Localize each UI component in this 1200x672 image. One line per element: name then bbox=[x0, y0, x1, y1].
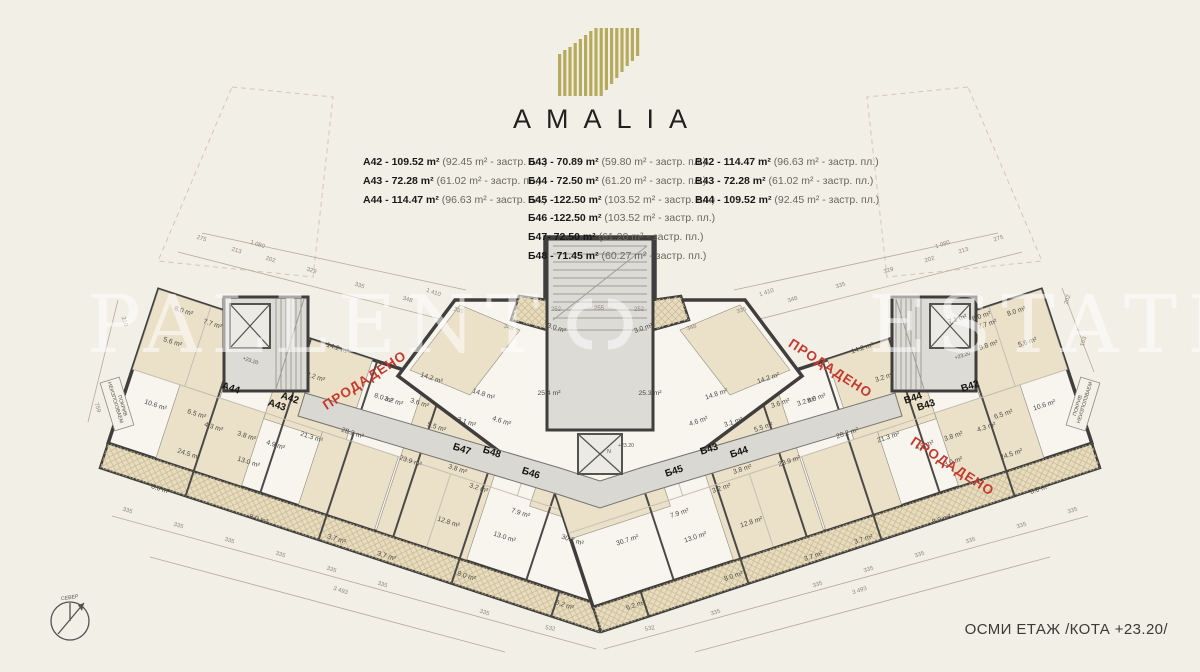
dimension-label: 275 bbox=[993, 234, 1005, 243]
legend-unit-area: Б45 -122.50 m² bbox=[528, 194, 602, 206]
legend-item: Б46 -122.50 m² (103.52 m² - застр. пл.) bbox=[528, 208, 715, 227]
dimension-label: 329 bbox=[306, 267, 318, 276]
dimension-label: 335 bbox=[377, 581, 389, 590]
legend-built-area: (59.80 m² - застр. пл.) bbox=[599, 156, 707, 168]
dimension-label: 335 bbox=[326, 566, 338, 575]
logo-title: AMALIA bbox=[0, 104, 1200, 135]
plan-note-label: N bbox=[607, 449, 611, 455]
legend-unit-area: Б47- 72.50 m² bbox=[528, 231, 596, 243]
dimension-label: 335 bbox=[224, 537, 236, 546]
legend-item: Б47- 72.50 m² (61.20 m² - застр. пл.) bbox=[528, 227, 715, 246]
dimension-label: 335 bbox=[835, 281, 847, 290]
dimension-label: 1 080 bbox=[935, 240, 952, 251]
dimension-label: 335 bbox=[710, 608, 722, 617]
legend-unit-area: В44 - 109.52 m² bbox=[695, 194, 771, 206]
legend-unit-area: В43 - 72.28 m² bbox=[695, 175, 766, 187]
floor-title: ОСМИ ЕТАЖ /КОТА +23.20/ bbox=[965, 621, 1169, 638]
dimension-label: 335 bbox=[173, 522, 185, 531]
dimension-label: 335 bbox=[812, 580, 824, 589]
dimension-label: 335 bbox=[914, 550, 926, 559]
room-area-label: 25.4 m² bbox=[537, 390, 561, 397]
legend-built-area: (61.02 m² - застр. пл.) bbox=[766, 175, 874, 187]
dimension-label: 532 bbox=[644, 625, 656, 633]
dimension-label: 759 bbox=[93, 402, 102, 414]
legend-column-b: Б43 - 70.89 m² (59.80 m² - застр. пл.)Б4… bbox=[528, 152, 715, 265]
legend-item: Б45 -122.50 m² (103.52 m² - застр. пл.) bbox=[528, 190, 715, 209]
legend-item: Б44 - 72.50 m² (61.20 m² - застр. пл.) bbox=[528, 171, 715, 190]
dimension-label: 335 bbox=[275, 551, 287, 560]
legend-item: В42 - 114.47 m² (96.63 m² - застр. пл.) bbox=[695, 152, 879, 171]
legend-built-area: (92.45 m² - застр. пл.) bbox=[771, 194, 879, 206]
legend-item: A43 - 72.28 m² (61.02 m² - застр. пл.) bbox=[363, 171, 547, 190]
legend-built-area: (60.27 m² - застр. пл.) bbox=[599, 250, 707, 262]
legend-item: Б48 - 71.45 m² (60.27 m² - застр. пл.) bbox=[528, 246, 715, 265]
dimension-label: 213 bbox=[958, 246, 970, 255]
legend-column-a: A42 - 109.52 m² (92.45 m² - застр. пл.)A… bbox=[363, 152, 547, 208]
legend-unit-area: Б48 - 71.45 m² bbox=[528, 250, 599, 262]
logo: AMALIA bbox=[0, 28, 1200, 135]
central-elevator-icon bbox=[578, 434, 622, 474]
legend-unit-area: Б44 - 72.50 m² bbox=[528, 175, 599, 187]
legend-unit-area: A43 - 72.28 m² bbox=[363, 175, 434, 187]
dimension-label: 532 bbox=[545, 625, 557, 633]
logo-bars-icon bbox=[558, 28, 642, 96]
legend-unit-area: A42 - 109.52 m² bbox=[363, 156, 439, 168]
dimension-label: 1 080 bbox=[249, 240, 266, 251]
dimension-label: 252 bbox=[634, 307, 645, 313]
dimension-label: 348 bbox=[787, 295, 799, 304]
legend-unit-area: В42 - 114.47 m² bbox=[695, 156, 771, 168]
page: 8.0 m²7.7 m²5.6 m²14.2 m²3.2 m²3.2 m²10.… bbox=[0, 0, 1200, 672]
watermark-right: ESTATE bbox=[868, 278, 1200, 371]
plan-note-label: +23.20 bbox=[618, 443, 634, 449]
legend-unit-area: Б46 -122.50 m² bbox=[528, 212, 602, 224]
legend-unit-area: Б43 - 70.89 m² bbox=[528, 156, 599, 168]
dimension-label: 329 bbox=[883, 266, 895, 275]
dimension-label: 3 493 bbox=[332, 586, 349, 597]
dimension-label: 1 410 bbox=[759, 288, 776, 299]
dimension-label: 335 bbox=[965, 536, 977, 545]
dimension-label: 335 bbox=[122, 507, 134, 516]
legend-built-area: (103.52 m² - застр. пл.) bbox=[602, 212, 716, 224]
north-compass-icon bbox=[51, 602, 89, 640]
dimension-label: 213 bbox=[231, 247, 243, 256]
dimension-label: 275 bbox=[196, 235, 208, 244]
legend-built-area: (61.20 m² - застр. пл.) bbox=[596, 231, 704, 243]
dimension-label: 202 bbox=[265, 256, 277, 265]
legend-built-area: (61.20 m² - застр. пл.) bbox=[599, 175, 707, 187]
legend-item: В43 - 72.28 m² (61.02 m² - застр. пл.) bbox=[695, 171, 879, 190]
dimension-label: 202 bbox=[924, 255, 936, 264]
dimension-label: 335 bbox=[1067, 506, 1079, 515]
legend-built-area: (61.02 m² - застр. пл.) bbox=[434, 175, 542, 187]
dimension-label: 335 bbox=[863, 565, 875, 574]
dimension-label: 335 bbox=[1016, 521, 1028, 530]
plan-note-label: СЕВЕР bbox=[61, 594, 80, 602]
legend-item: A42 - 109.52 m² (92.45 m² - застр. пл.) bbox=[363, 152, 547, 171]
dimension-label: 335 bbox=[479, 609, 491, 618]
central-stairs bbox=[547, 239, 653, 430]
dimension-label: 3 493 bbox=[852, 586, 869, 597]
legend-item: В44 - 109.52 m² (92.45 m² - застр. пл.) bbox=[695, 190, 879, 209]
legend-item: Б43 - 70.89 m² (59.80 m² - застр. пл.) bbox=[528, 152, 715, 171]
legend-unit-area: A44 - 114.47 m² bbox=[363, 194, 439, 206]
legend-item: A44 - 114.47 m² (96.63 m² - застр. пл.) bbox=[363, 190, 547, 209]
dimension-label: 255 bbox=[594, 306, 605, 312]
dimension-label: 252 bbox=[551, 307, 562, 313]
room-area-label: 25.3 m² bbox=[638, 390, 662, 397]
legend-built-area: (96.63 m² - застр. пл.) bbox=[771, 156, 879, 168]
legend-column-v: В42 - 114.47 m² (96.63 m² - застр. пл.)В… bbox=[695, 152, 879, 208]
watermark-left: PALLENT bbox=[87, 278, 549, 371]
